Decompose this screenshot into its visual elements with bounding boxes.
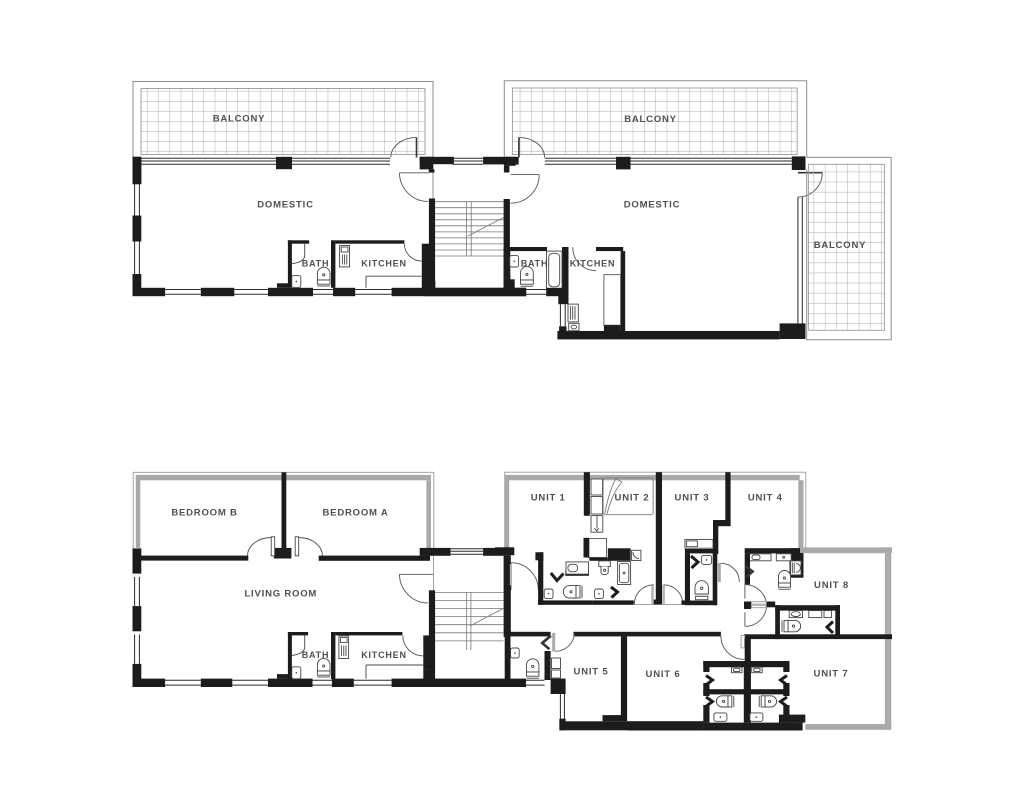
svg-text:KITCHEN: KITCHEN bbox=[570, 258, 616, 268]
svg-text:UNIT 6: UNIT 6 bbox=[646, 669, 681, 680]
svg-text:DOMESTIC: DOMESTIC bbox=[624, 200, 681, 211]
svg-text:UNIT 4: UNIT 4 bbox=[748, 493, 783, 504]
svg-text:UNIT 8: UNIT 8 bbox=[814, 580, 849, 591]
svg-text:UNIT 5: UNIT 5 bbox=[574, 667, 609, 678]
svg-text:UNIT 7: UNIT 7 bbox=[814, 668, 849, 679]
svg-text:UNIT 1: UNIT 1 bbox=[531, 493, 566, 504]
svg-text:KITCHEN: KITCHEN bbox=[361, 259, 407, 269]
svg-text:BALCONY: BALCONY bbox=[814, 240, 867, 251]
svg-text:UNIT 2: UNIT 2 bbox=[615, 493, 650, 504]
svg-text:LIVING ROOM: LIVING ROOM bbox=[244, 589, 317, 600]
svg-text:UNIT 3: UNIT 3 bbox=[675, 493, 710, 504]
svg-text:KITCHEN: KITCHEN bbox=[361, 650, 407, 660]
svg-text:BEDROOM B: BEDROOM B bbox=[171, 508, 237, 519]
svg-text:BALCONY: BALCONY bbox=[213, 114, 266, 125]
svg-text:DOMESTIC: DOMESTIC bbox=[257, 200, 314, 211]
svg-text:BALCONY: BALCONY bbox=[624, 114, 677, 125]
svg-text:BEDROOM A: BEDROOM A bbox=[323, 508, 389, 519]
